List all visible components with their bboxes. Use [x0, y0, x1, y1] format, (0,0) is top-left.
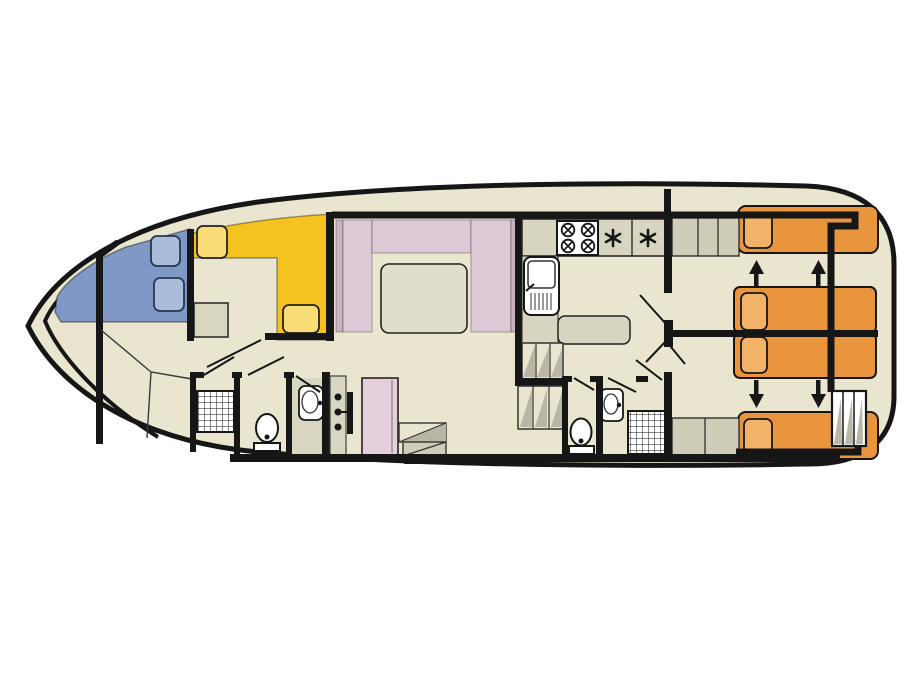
bow-bed-pillow: [151, 236, 180, 266]
sink: [524, 257, 559, 315]
sofa-back: [372, 220, 471, 253]
bow-bulkhead-wall: [96, 252, 103, 444]
bathroom-wall-cap: [590, 376, 603, 382]
bathroom-wall-cap: [562, 376, 572, 382]
companionway-stairs: [515, 343, 565, 429]
sink-bowl: [528, 261, 555, 288]
shower-tray: [628, 411, 667, 454]
stairs-side-wall: [515, 345, 522, 386]
dinette-cushion: [197, 226, 227, 258]
bed-pillow: [741, 293, 767, 330]
saloon-galley-wall: [515, 212, 522, 345]
bathroom-wall: [190, 372, 196, 452]
knob-cabinet: [330, 376, 346, 456]
bathroom-wall-cap: [636, 376, 648, 382]
bathroom-wall: [596, 376, 603, 458]
dinette-front-wall: [265, 333, 332, 340]
bathroom-wall: [234, 372, 240, 454]
saloon-table: [381, 264, 467, 333]
cabinet-knob: [335, 409, 342, 416]
bed-pillow: [744, 214, 772, 248]
dinette-saloon-wall: [326, 212, 334, 341]
washbasin: [601, 389, 623, 421]
bathroom-wall: [322, 372, 330, 456]
stern-ladder: [832, 391, 866, 446]
stairs-mid-wall: [518, 378, 565, 386]
bathroom-wall: [286, 372, 292, 454]
shower-tray: [197, 391, 234, 432]
bow-bed-pillow: [154, 278, 184, 311]
sofa-arm-left: [343, 220, 372, 332]
toilet: [254, 414, 280, 451]
cabinet-knob: [335, 424, 342, 431]
galley-cabin-wall: [664, 212, 672, 293]
burner-icon: [562, 224, 575, 237]
bathroom-wall-cap: [284, 372, 294, 378]
bathroom-wall-cap: [232, 372, 242, 378]
sofa-arm-right: [471, 220, 511, 332]
aft-lobby-wall: [664, 372, 672, 460]
dinette-cushion: [283, 305, 319, 333]
cabin-partition-wall: [187, 229, 194, 341]
main-bottom-wall: [230, 454, 840, 462]
dinette-table: [194, 303, 228, 337]
dresser-top-cabin: [672, 218, 739, 256]
bathroom-wall: [562, 376, 568, 458]
houseboat-floor-plan: [0, 0, 904, 678]
saloon: [336, 212, 522, 345]
sofa-edge-left: [336, 220, 343, 332]
stove: [557, 221, 598, 255]
partition-bar: [347, 392, 353, 434]
counter-peninsula: [558, 316, 630, 344]
aft-cabin-divider-wall: [666, 330, 878, 337]
bed-pillow: [744, 419, 772, 453]
bathroom-wall-cap: [190, 372, 204, 378]
burner-icon: [582, 240, 595, 253]
bed-pillow: [741, 337, 767, 373]
side-entry-steps: [399, 423, 446, 456]
toilet: [569, 419, 594, 455]
floor-plan-canvas: [0, 0, 904, 678]
burner-icon: [582, 224, 595, 237]
burner-icon: [562, 240, 575, 253]
cabinet-knob: [335, 394, 342, 401]
